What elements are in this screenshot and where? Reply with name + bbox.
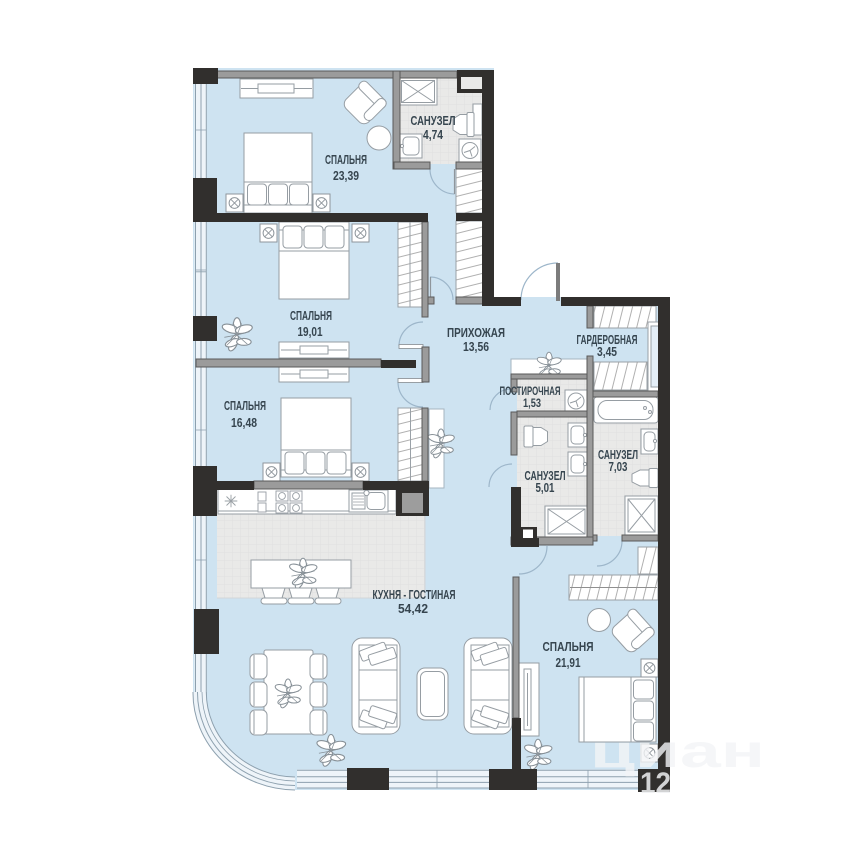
svg-text:7,03: 7,03 [609, 460, 628, 474]
svg-text:19,01: 19,01 [298, 325, 323, 339]
svg-text:КУХНЯ - ГОСТИНАЯ: КУХНЯ - ГОСТИНАЯ [373, 588, 456, 602]
svg-text:16,48: 16,48 [231, 416, 257, 430]
svg-text:54,42: 54,42 [398, 602, 428, 616]
svg-text:СПАЛЬНЯ: СПАЛЬНЯ [325, 153, 367, 167]
svg-text:1,53: 1,53 [523, 396, 541, 410]
svg-text:5,01: 5,01 [536, 481, 555, 495]
svg-text:САНУЗЕЛ: САНУЗЕЛ [411, 114, 456, 128]
svg-text:12: 12 [640, 767, 671, 800]
svg-text:23,39: 23,39 [333, 169, 359, 183]
svg-text:4,74: 4,74 [423, 128, 443, 142]
svg-text:3,45: 3,45 [597, 345, 617, 359]
svg-text:СПАЛЬНЯ: СПАЛЬНЯ [290, 309, 332, 323]
svg-text:13,56: 13,56 [463, 340, 489, 354]
svg-text:ПРИХОЖАЯ: ПРИХОЖАЯ [447, 326, 505, 340]
svg-text:СПАЛЬНЯ: СПАЛЬНЯ [543, 640, 594, 654]
svg-text:21,91: 21,91 [556, 656, 581, 670]
svg-text:СПАЛЬНЯ: СПАЛЬНЯ [224, 399, 266, 413]
svg-text:циан: циан [590, 725, 765, 777]
